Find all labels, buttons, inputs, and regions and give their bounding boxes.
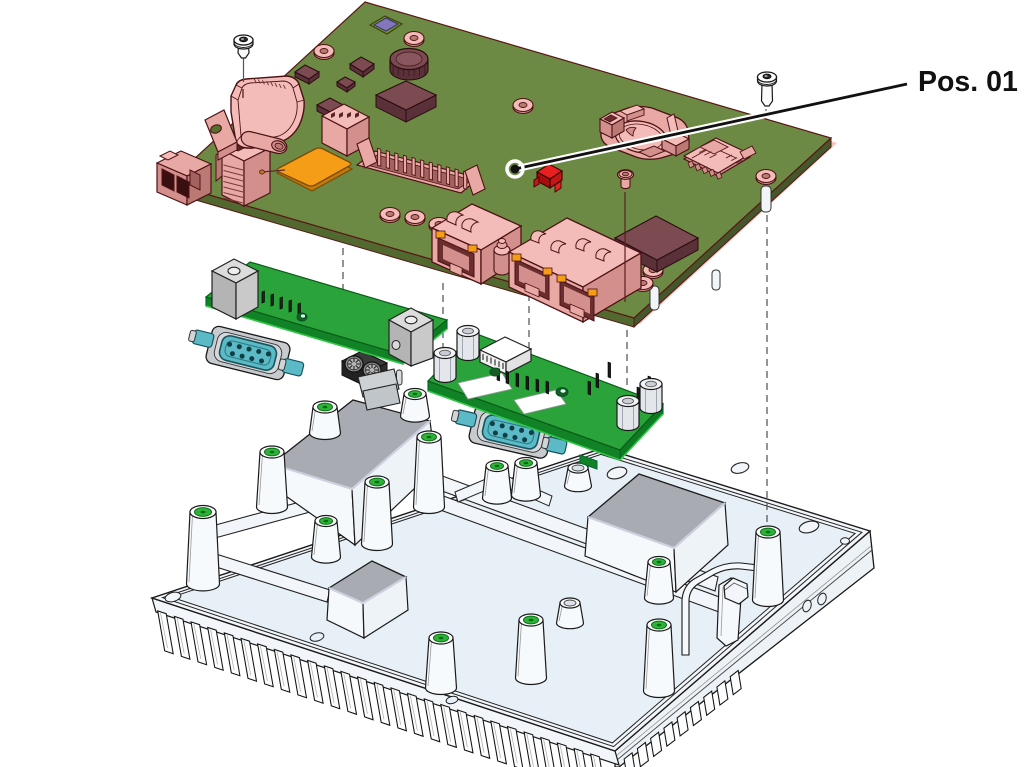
svg-text:Pos. 01: Pos. 01 [918,66,1018,98]
